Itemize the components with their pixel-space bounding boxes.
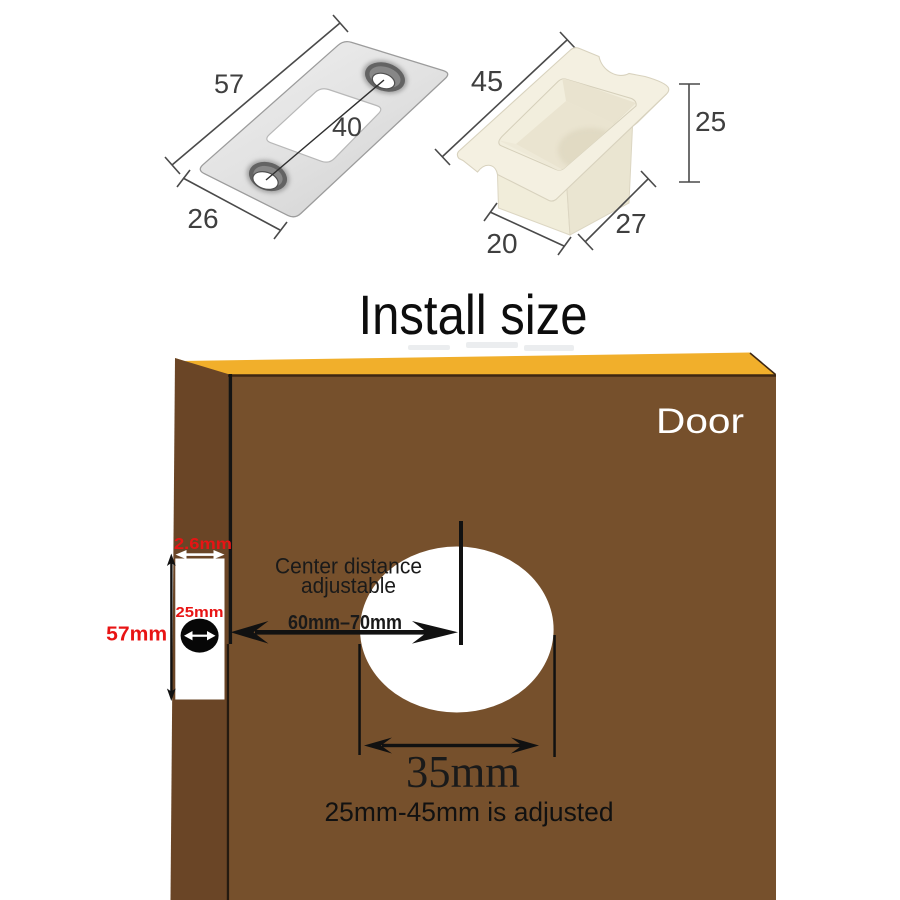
svg-text:26: 26 xyxy=(187,203,218,234)
svg-text:adjustable: adjustable xyxy=(301,573,396,598)
svg-text:40: 40 xyxy=(332,112,362,142)
svg-text:20: 20 xyxy=(486,228,517,259)
svg-text:Install size: Install size xyxy=(359,283,588,346)
svg-text:45: 45 xyxy=(471,66,503,98)
svg-text:2.6mm: 2.6mm xyxy=(174,536,232,553)
svg-text:25mm: 25mm xyxy=(176,605,224,621)
svg-text:35mm: 35mm xyxy=(406,747,520,797)
svg-text:27: 27 xyxy=(615,208,646,239)
svg-text:25mm-45mm is adjusted: 25mm-45mm is adjusted xyxy=(325,797,614,827)
svg-text:57: 57 xyxy=(214,69,244,99)
svg-text:60mm–70mm: 60mm–70mm xyxy=(288,612,402,634)
svg-text:Door: Door xyxy=(656,402,744,441)
svg-text:57mm: 57mm xyxy=(106,623,167,646)
svg-text:25: 25 xyxy=(695,106,726,137)
